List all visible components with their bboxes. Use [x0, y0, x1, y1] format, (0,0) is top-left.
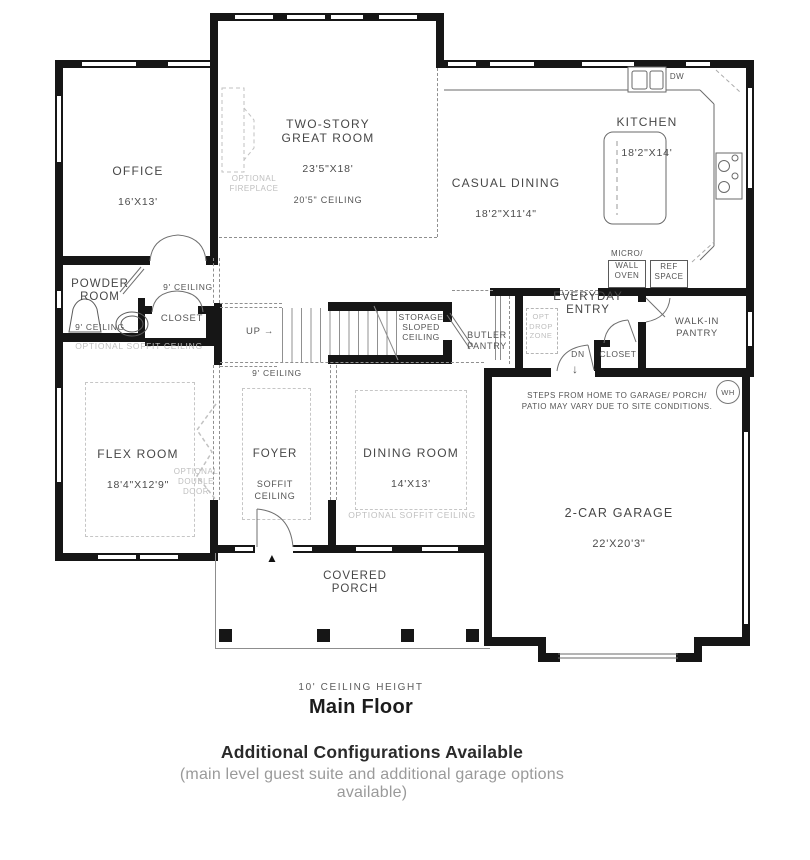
dn-label: DN — [571, 349, 585, 360]
garage-steps-note: STEPS FROM HOME TO GARAGE/ PORCH/ PATIO … — [522, 390, 713, 412]
room-name: OFFICE — [112, 164, 163, 178]
storage-label: STORAGE SLOPED CEILING — [399, 312, 444, 342]
hall-ceiling-label: 9' CEILING — [163, 282, 213, 293]
great-room-label: TWO-STORY GREAT ROOM 23'5"X18' 20'5" CEI… — [282, 99, 375, 224]
foyer-label: FOYER SOFFIT CEILING — [253, 430, 298, 520]
ceiling-note: 20'5" CEILING — [282, 194, 375, 206]
floor-plan: OFFICE 16'X13' TWO-STORY GREAT ROOM 23'5… — [0, 0, 810, 860]
closet-double-door — [152, 291, 203, 312]
office-label: OFFICE 16'X13' — [112, 146, 163, 227]
up-text: UP — [246, 326, 261, 337]
wall-oven-label: WALL OVEN — [615, 261, 640, 281]
room-name: DINING ROOM — [363, 446, 459, 460]
ref-space-label: REF SPACE — [654, 262, 683, 282]
room-dims: 18'2"X14' — [616, 147, 677, 160]
butler-pantry-label: BUTLER PANTRY — [467, 330, 507, 351]
up-arrow-icon: → — [264, 326, 274, 337]
everyday-entry-label: EVERYDAY ENTRY — [553, 291, 623, 317]
room-name: 2-CAR GARAGE — [565, 506, 674, 520]
entry-closet-label: CLOSET — [599, 349, 636, 359]
kitchen-sink — [628, 67, 666, 92]
ceiling-note: 9' CEILING — [71, 322, 129, 333]
room-dims: 22'X20'3" — [565, 538, 674, 551]
room-name: KITCHEN — [616, 115, 677, 129]
casual-dining-label: CASUAL DINING 18'2"X11'4" — [452, 158, 561, 239]
flex-soffit-label: OPTIONAL SOFFIT CEILING — [75, 341, 203, 352]
room-name: FLEX ROOM — [97, 447, 178, 461]
covered-porch-label: COVERED PORCH — [323, 570, 387, 596]
powder-room-label: POWDER ROOM 9' CEILING — [71, 260, 129, 351]
room-name: TWO-STORY GREAT ROOM — [282, 117, 375, 145]
room-name: POWDER ROOM — [71, 278, 129, 304]
stairs-break-line — [374, 306, 398, 360]
room-name: FOYER — [253, 448, 298, 461]
office-double-door — [150, 235, 206, 261]
optional-fireplace-outline — [222, 88, 254, 172]
dishwasher-label: DW — [670, 72, 684, 82]
water-heater-label: WH — [721, 388, 735, 397]
foyer-sub: SOFFIT CEILING — [253, 479, 298, 502]
entry-marker-icon: ▲ — [266, 551, 278, 565]
water-heater: WH — [716, 380, 740, 404]
drop-zone-label: OPT DROP ZONE — [529, 312, 553, 341]
garage-door — [558, 654, 678, 658]
room-name: CASUAL DINING — [452, 176, 561, 190]
flex-room-label: FLEX ROOM 18'4"X12'9" — [97, 429, 178, 510]
dn-arrow-icon: ↓ — [572, 362, 578, 376]
dining-soffit-label: OPTIONAL SOFFIT CEILING — [348, 510, 476, 521]
pantry-door — [646, 298, 670, 322]
room-dims: 18'2"X11'4" — [452, 208, 561, 221]
hall-closet-label: CLOSET — [161, 314, 203, 325]
foyer-ceiling-label: 9' CEILING — [252, 368, 302, 379]
room-dims: 14'X13' — [363, 478, 459, 491]
micro-label: MICRO/ — [611, 249, 643, 259]
garage-label: 2-CAR GARAGE 22'X20'3" — [565, 488, 674, 569]
cooktop — [716, 153, 742, 199]
entry-closet-door — [604, 320, 636, 343]
footer-options-note: (main level guest suite and additional g… — [153, 766, 591, 802]
stairs-up-label: UP → — [246, 326, 274, 337]
ceiling-height-caption: 10' CEILING HEIGHT — [298, 682, 423, 693]
walk-in-pantry-label: WALK-IN PANTRY — [675, 316, 719, 340]
room-dims: 23'5"X18' — [282, 163, 375, 176]
room-dims: 16'X13' — [112, 196, 163, 209]
kitchen-label: KITCHEN 18'2"X14' — [616, 97, 677, 178]
optional-fireplace-label: OPTIONAL FIREPLACE — [230, 174, 279, 194]
footer-configurations: Additional Configurations Available — [221, 742, 523, 763]
room-dims: 18'4"X12'9" — [97, 479, 178, 492]
floor-title: Main Floor — [309, 696, 413, 719]
optional-double-door-label: OPTIONAL DOUBLE DOOR — [174, 467, 218, 497]
dining-room-label: DINING ROOM 14'X13' — [363, 428, 459, 509]
